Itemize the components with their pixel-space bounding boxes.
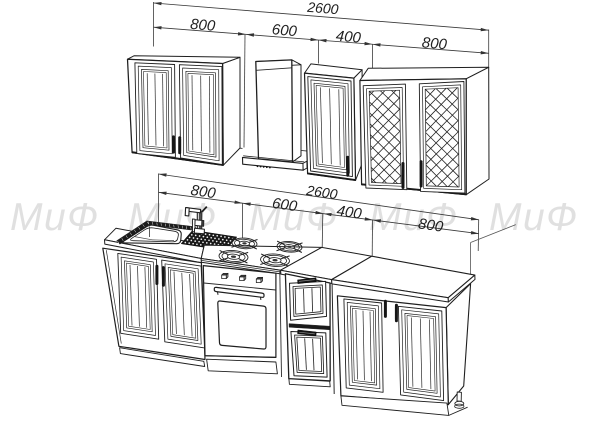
svg-text:400: 400 bbox=[336, 202, 364, 222]
svg-text:МиФ: МиФ bbox=[489, 196, 579, 239]
svg-text:МиФ: МиФ bbox=[369, 196, 459, 239]
svg-text:400: 400 bbox=[335, 28, 362, 47]
svg-text:800: 800 bbox=[189, 16, 216, 35]
svg-text:800: 800 bbox=[417, 215, 445, 235]
svg-text:800: 800 bbox=[190, 182, 218, 202]
svg-text:МиФ: МиФ bbox=[10, 196, 100, 239]
svg-text:600: 600 bbox=[271, 195, 299, 215]
svg-text:800: 800 bbox=[421, 34, 448, 53]
svg-text:2600: 2600 bbox=[306, 0, 340, 17]
svg-text:600: 600 bbox=[271, 21, 298, 40]
